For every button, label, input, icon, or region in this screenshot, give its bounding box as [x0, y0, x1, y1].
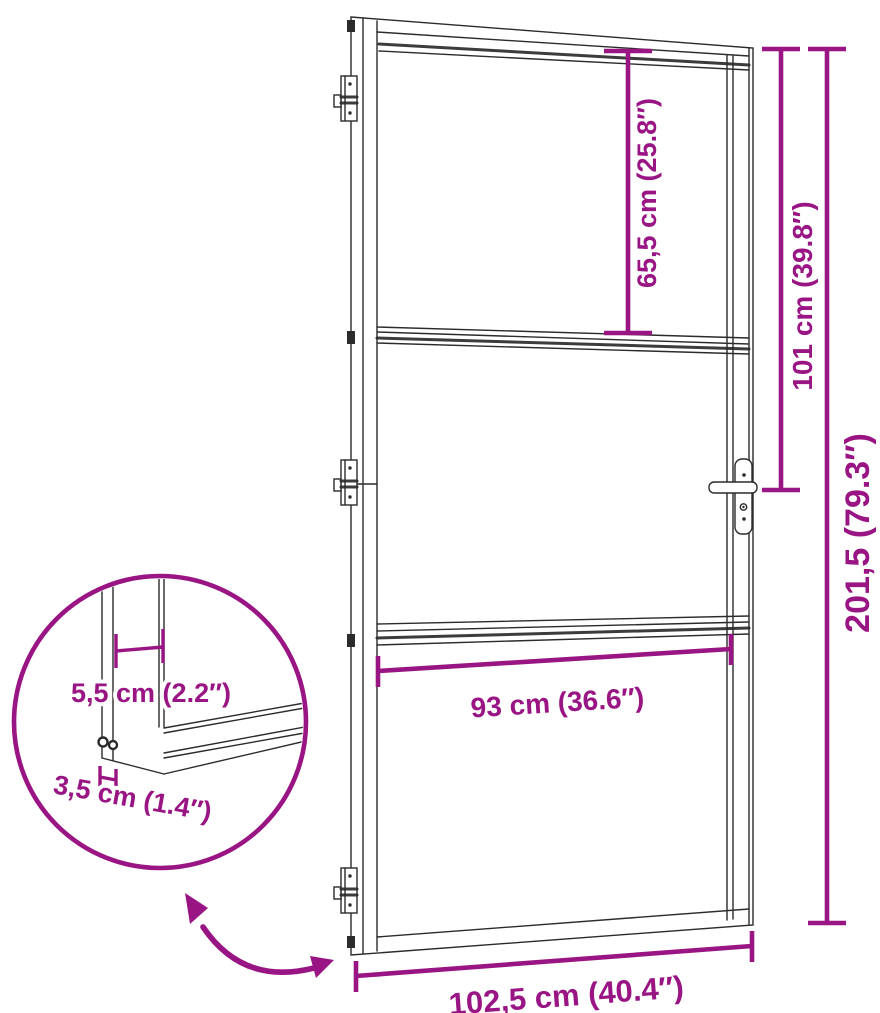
hinge-bottom — [334, 868, 357, 913]
handle-lever — [709, 482, 757, 493]
handle-screw-top — [742, 473, 746, 477]
handle-screw-bottom — [742, 517, 746, 521]
door-drawing — [347, 17, 753, 955]
hinge-screw — [348, 466, 351, 469]
dimension-label-profile-depth: 3,5 cm (1.4″) — [51, 769, 214, 826]
dimension-label-total-height: 201,5 (79.3″) — [839, 433, 877, 633]
handle-backplate — [735, 459, 752, 534]
dimension-label-top-panel-height: 65,5 cm (25.8″) — [632, 98, 662, 288]
hinge-screw — [348, 111, 351, 114]
hinge-screw — [348, 495, 351, 498]
dimension-glass-width: 93 cm (36.6″) — [378, 634, 731, 723]
dimension-label-handle-height: 101 cm (39.8″) — [787, 201, 818, 390]
detail-circle-border — [14, 576, 306, 868]
edge-mark-bottom-rail — [347, 634, 355, 647]
detail-rail-line-3 — [164, 726, 310, 753]
detail-bottom-edge — [102, 758, 164, 774]
hinge-screw — [348, 82, 351, 85]
middle-rail-shadow — [377, 338, 749, 349]
dimension-line — [378, 649, 731, 671]
dimension-line — [116, 647, 163, 651]
hinge-top — [334, 76, 357, 121]
dimension-total-height: 201,5 (79.3″) — [808, 49, 877, 923]
hinge-middle — [334, 460, 357, 505]
zoom-arrow-head-right — [310, 956, 334, 978]
edge-mark-bottom — [347, 936, 355, 948]
dimension-label-profile-width: 5,5 cm (2.2″) — [71, 678, 231, 708]
door-slab-outline — [351, 17, 753, 955]
middle-rail-line-1 — [377, 327, 749, 338]
product-diagram: 65,5 cm (25.8″) 101 cm (39.8″) 201,5 (79… — [0, 0, 880, 1013]
zoom-arrow-head-left — [185, 893, 208, 924]
detail-screw-1 — [99, 738, 108, 747]
profile-detail-circle: 5,5 cm (2.2″) 3,5 cm (1.4″) — [14, 570, 310, 868]
dimension-label-glass-width: 93 cm (36.6″) — [470, 682, 645, 724]
dimension-top-panel-height: 65,5 cm (25.8″) — [604, 51, 662, 333]
edge-mark-middle-rail — [347, 331, 355, 344]
hinge-screw — [348, 874, 351, 877]
dimension-total-width: 102,5 cm (40.4″) — [356, 931, 752, 1013]
dimension-label-total-width: 102,5 cm (40.4″) — [448, 969, 685, 1013]
zoom-arrow — [185, 893, 334, 978]
hinge-screw — [348, 903, 351, 906]
edge-mark-top — [347, 20, 355, 32]
detail-rail-line-2 — [164, 707, 310, 733]
detail-screw-2 — [109, 741, 117, 749]
dimension-handle-height: 101 cm (39.8″) — [762, 49, 818, 490]
lock-cylinder-pin — [742, 506, 744, 508]
diagram-canvas: 65,5 cm (25.8″) 101 cm (39.8″) 201,5 (79… — [0, 0, 880, 1013]
door-bottom-line — [377, 909, 749, 937]
zoom-arrow-arc — [203, 927, 314, 972]
